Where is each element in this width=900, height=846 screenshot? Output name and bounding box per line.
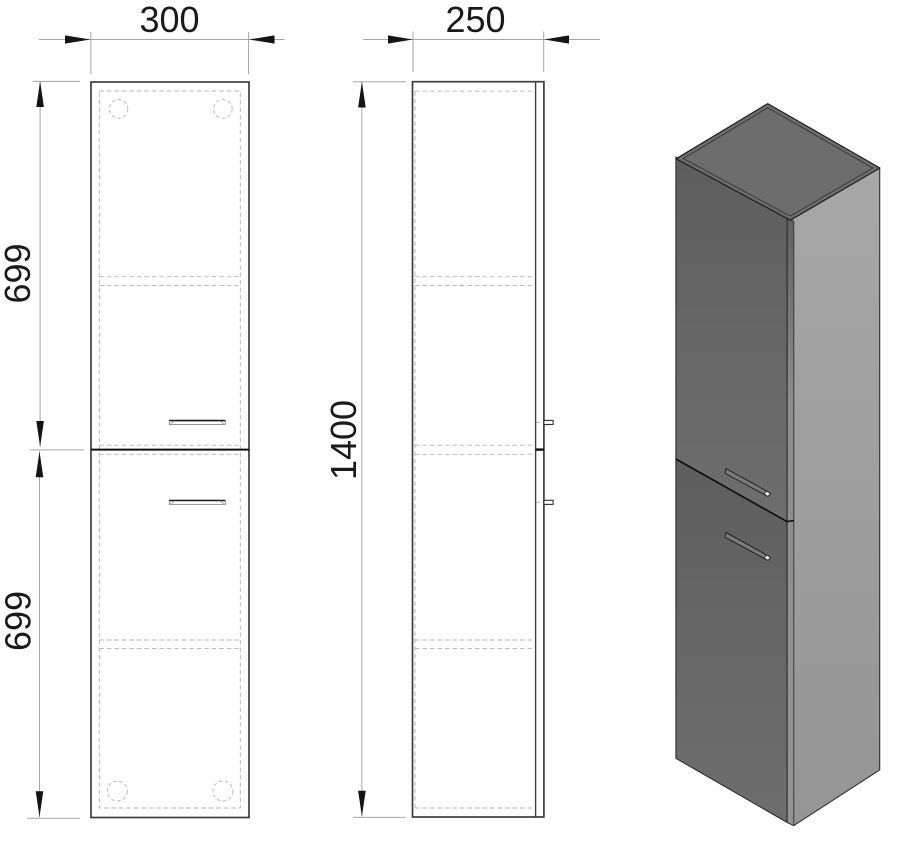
svg-text:250: 250 [445, 0, 505, 40]
svg-text:1400: 1400 [323, 400, 364, 480]
svg-text:699: 699 [0, 591, 38, 651]
svg-text:300: 300 [139, 0, 199, 40]
svg-text:699: 699 [0, 243, 38, 303]
